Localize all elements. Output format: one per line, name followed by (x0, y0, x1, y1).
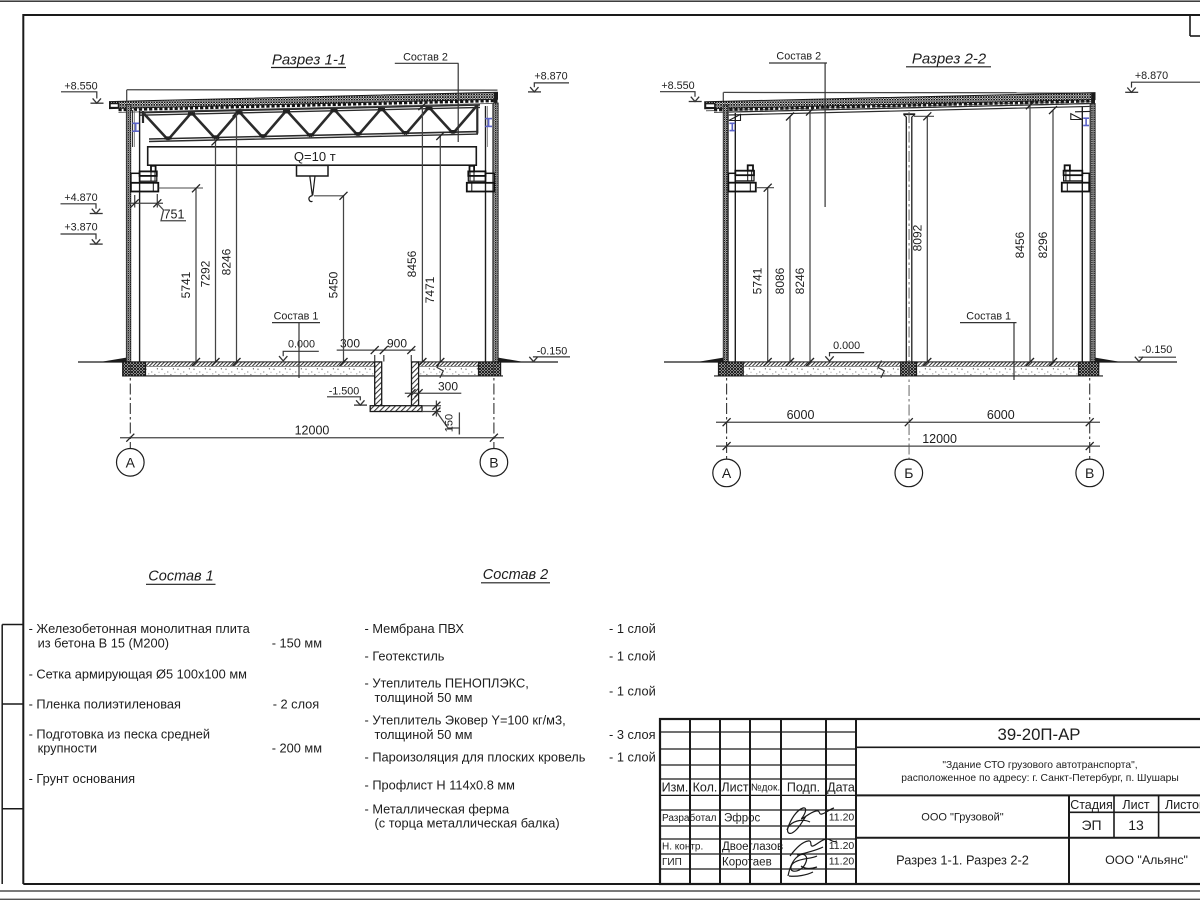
svg-text:13: 13 (1128, 817, 1144, 833)
svg-text:+8.870: +8.870 (534, 71, 567, 83)
svg-text:11.20: 11.20 (829, 812, 855, 824)
svg-text:- Железобетонная монолитная п: - Железобетонная монолитная плита (29, 621, 251, 636)
svg-text:6000: 6000 (987, 408, 1015, 422)
svg-text:8246: 8246 (220, 248, 234, 275)
svg-text:Эфрос: Эфрос (724, 813, 761, 825)
svg-text:8246: 8246 (793, 267, 807, 294)
svg-text:В: В (489, 454, 498, 470)
svg-text:Состав 2: Состав 2 (483, 567, 548, 583)
svg-text:Состав 2: Состав 2 (776, 51, 821, 63)
svg-text:-1.500: -1.500 (329, 385, 360, 397)
svg-text:расположенное по адресу: г. Са: расположенное по адресу: г. Санкт-Петерб… (901, 772, 1179, 784)
svg-text:Разрез 1-1. Разрез 2-2: Разрез 1-1. Разрез 2-2 (896, 853, 1029, 868)
svg-text:Дата: Дата (827, 781, 855, 795)
svg-text:8296: 8296 (1036, 231, 1050, 258)
svg-text:ЭП: ЭП (1081, 817, 1101, 833)
svg-text:В: В (1085, 465, 1094, 481)
svg-text:300: 300 (438, 380, 458, 394)
svg-text:Состав 1: Состав 1 (274, 311, 319, 323)
svg-text:- Утеплитель ПЕНОПЛЭКС,: - Утеплитель ПЕНОПЛЭКС, (365, 676, 529, 691)
svg-text:крупности: крупности (38, 741, 98, 756)
svg-text:Q=10 т: Q=10 т (294, 149, 336, 164)
svg-text:Разработал: Разработал (662, 812, 717, 824)
svg-text:11.20: 11.20 (829, 840, 855, 852)
svg-text:Листов: Листов (1165, 798, 1200, 812)
svg-text:150: 150 (444, 414, 456, 432)
svg-text:Н. контр.: Н. контр. (662, 842, 703, 853)
svg-text:-0.150: -0.150 (537, 346, 568, 358)
svg-text:- Пленка полиэтиленовая: - Пленка полиэтиленовая (29, 697, 181, 712)
svg-text:ГИП: ГИП (662, 857, 682, 868)
svg-text:- 3 слоя: - 3 слоя (609, 727, 656, 742)
svg-text:(с торца металлическая балка): (с торца металлическая балка) (375, 816, 560, 831)
svg-text:Подп.: Подп. (787, 781, 820, 795)
svg-text:- Металлическая ферма: - Металлическая ферма (365, 802, 510, 817)
svg-text:12000: 12000 (922, 432, 957, 446)
svg-text:- Пароизоляция для плоских кро: - Пароизоляция для плоских кровель (365, 750, 586, 765)
svg-text:5741: 5741 (751, 267, 765, 294)
svg-text:5741: 5741 (179, 271, 193, 298)
svg-text:+4.870: +4.870 (64, 192, 97, 204)
svg-text:- Утеплитель Эковер Y=100 кг/м: - Утеплитель Эковер Y=100 кг/м3, (365, 713, 566, 728)
svg-text:- 1 слой: - 1 слой (609, 684, 656, 699)
svg-text:Двоеглазов: Двоеглазов (722, 841, 783, 853)
svg-text:из бетона В 15 (М200): из бетона В 15 (М200) (38, 635, 169, 650)
svg-text:-0.150: -0.150 (1142, 344, 1173, 356)
svg-text:Разрез 2-2: Разрез 2-2 (912, 51, 987, 68)
svg-text:А: А (722, 465, 732, 481)
svg-text:900: 900 (387, 337, 407, 351)
svg-text:ООО "Альянс": ООО "Альянс" (1105, 853, 1188, 867)
svg-text:Состав 1: Состав 1 (966, 311, 1011, 323)
svg-text:Кол.: Кол. (693, 781, 718, 795)
svg-text:№док.: №док. (751, 783, 780, 794)
svg-text:8456: 8456 (405, 250, 419, 277)
svg-text:Коротаев: Коротаев (722, 857, 772, 869)
svg-text:- Грунт основания: - Грунт основания (29, 771, 136, 786)
svg-text:751: 751 (164, 207, 185, 221)
svg-text:- Подготовка из песка средней: - Подготовка из песка средней (29, 726, 210, 741)
svg-text:8456: 8456 (1013, 231, 1027, 258)
svg-text:39-20П-АР: 39-20П-АР (998, 725, 1081, 744)
svg-text:Состав 1: Состав 1 (148, 568, 213, 584)
svg-text:толщиной 50 мм: толщиной 50 мм (375, 690, 473, 705)
svg-text:- Профлист Н 114х0.8 мм: - Профлист Н 114х0.8 мм (365, 778, 515, 793)
svg-text:"Здание СТО грузового автотран: "Здание СТО грузового автотранспорта", (942, 760, 1137, 771)
svg-text:11.20: 11.20 (829, 856, 855, 868)
svg-text:7292: 7292 (199, 260, 213, 287)
svg-text:+8.550: +8.550 (661, 80, 694, 92)
svg-text:толщиной 50 мм: толщиной 50 мм (375, 727, 473, 742)
svg-text:- Геотекстиль: - Геотекстиль (365, 649, 445, 664)
svg-text:- 200 мм: - 200 мм (272, 741, 322, 756)
svg-text:+8.870: +8.870 (1135, 70, 1168, 82)
svg-text:0.000: 0.000 (288, 339, 315, 351)
svg-text:Разрез 1-1: Разрез 1-1 (272, 51, 346, 68)
svg-text:8086: 8086 (773, 267, 787, 294)
svg-text:0.000: 0.000 (833, 340, 860, 352)
svg-text:+3.870: +3.870 (64, 222, 97, 234)
svg-text:Лист: Лист (721, 781, 748, 795)
svg-text:- 1 слой: - 1 слой (609, 621, 656, 636)
svg-text:8092: 8092 (910, 224, 924, 251)
svg-text:А: А (126, 454, 136, 470)
svg-text:- 1 слой: - 1 слой (609, 649, 656, 664)
svg-text:Стадия: Стадия (1070, 798, 1113, 812)
svg-text:12000: 12000 (295, 424, 330, 438)
svg-text:6000: 6000 (787, 408, 815, 422)
svg-text:Б: Б (904, 465, 913, 481)
svg-text:Изм.: Изм. (662, 781, 689, 795)
svg-text:ООО "Грузовой": ООО "Грузовой" (921, 811, 1003, 823)
svg-text:Состав 2: Состав 2 (403, 52, 448, 64)
svg-text:+8.550: +8.550 (64, 81, 97, 93)
svg-text:5450: 5450 (327, 271, 341, 298)
svg-text:- Сетка армирующая Ø5 100х100: - Сетка армирующая Ø5 100х100 мм (29, 667, 247, 682)
svg-text:- 1 слой: - 1 слой (609, 750, 656, 765)
svg-text:- 2 слоя: - 2 слоя (273, 697, 320, 712)
svg-text:- Мембрана ПВХ: - Мембрана ПВХ (365, 621, 465, 636)
svg-text:Лист: Лист (1122, 798, 1149, 812)
svg-text:- 150 мм: - 150 мм (272, 635, 322, 650)
svg-text:7471: 7471 (423, 276, 437, 303)
